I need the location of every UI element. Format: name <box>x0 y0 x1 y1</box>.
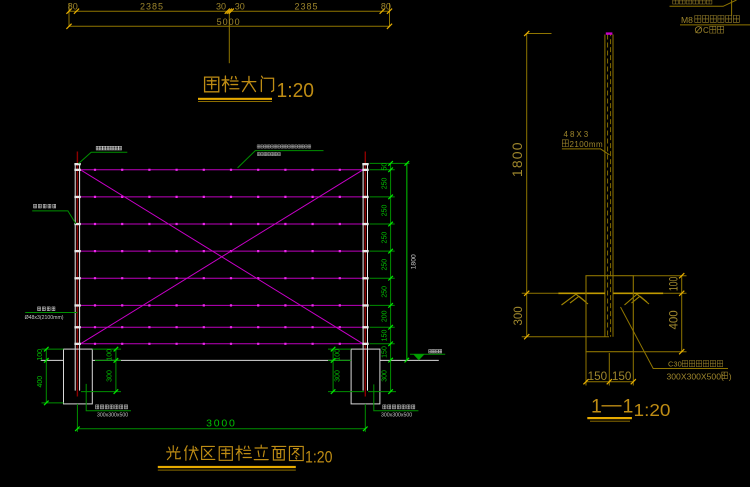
svg-text:30: 30 <box>216 2 226 12</box>
svg-text:50: 50 <box>381 163 388 171</box>
svg-text:2100mm: 2100mm <box>570 140 604 149</box>
svg-text:1:20: 1:20 <box>305 448 333 467</box>
svg-text:250: 250 <box>381 205 388 217</box>
svg-text:150: 150 <box>588 369 608 383</box>
svg-text:100: 100 <box>106 349 113 361</box>
svg-text:150: 150 <box>612 369 632 383</box>
svg-text:300: 300 <box>381 370 388 382</box>
svg-text:5000: 5000 <box>217 17 241 27</box>
svg-text:2385: 2385 <box>140 2 164 12</box>
svg-text:100: 100 <box>669 277 681 292</box>
svg-text:1:20: 1:20 <box>277 80 315 102</box>
svg-text:400: 400 <box>37 376 44 388</box>
svg-text:300: 300 <box>335 370 342 382</box>
svg-text:1800: 1800 <box>509 141 525 177</box>
svg-text:M8: M8 <box>681 15 693 25</box>
svg-text:80: 80 <box>68 2 78 12</box>
svg-text:1:20: 1:20 <box>634 400 671 420</box>
svg-text:C: C <box>703 26 709 35</box>
svg-text:250: 250 <box>381 177 388 189</box>
svg-text:100: 100 <box>335 349 342 361</box>
svg-text:80: 80 <box>381 2 391 12</box>
svg-text:1: 1 <box>623 396 634 418</box>
svg-text:): ) <box>729 371 732 381</box>
svg-text:3000: 3000 <box>206 418 237 430</box>
svg-text:48X3: 48X3 <box>564 130 591 139</box>
svg-text:200: 200 <box>381 310 388 322</box>
svg-text:100: 100 <box>37 349 44 361</box>
svg-text:C30: C30 <box>668 360 682 369</box>
svg-text:1: 1 <box>591 396 602 418</box>
svg-text:250: 250 <box>381 232 388 244</box>
svg-text:250: 250 <box>381 286 388 298</box>
svg-text:300: 300 <box>513 306 525 325</box>
svg-text:300x300x500: 300x300x500 <box>381 413 412 419</box>
svg-text:150: 150 <box>381 330 388 342</box>
svg-text:250: 250 <box>381 259 388 271</box>
svg-text:Ø48x3(2100mm): Ø48x3(2100mm) <box>25 315 64 321</box>
svg-text:300: 300 <box>106 370 113 382</box>
svg-text:300x300x500: 300x300x500 <box>97 413 128 419</box>
svg-text:300X300X500(: 300X300X500( <box>667 371 724 381</box>
svg-text:400: 400 <box>669 310 681 329</box>
svg-text:30: 30 <box>235 2 245 12</box>
svg-text:150: 150 <box>381 346 388 358</box>
svg-text:1800: 1800 <box>410 254 417 269</box>
svg-text:2385: 2385 <box>294 2 318 12</box>
